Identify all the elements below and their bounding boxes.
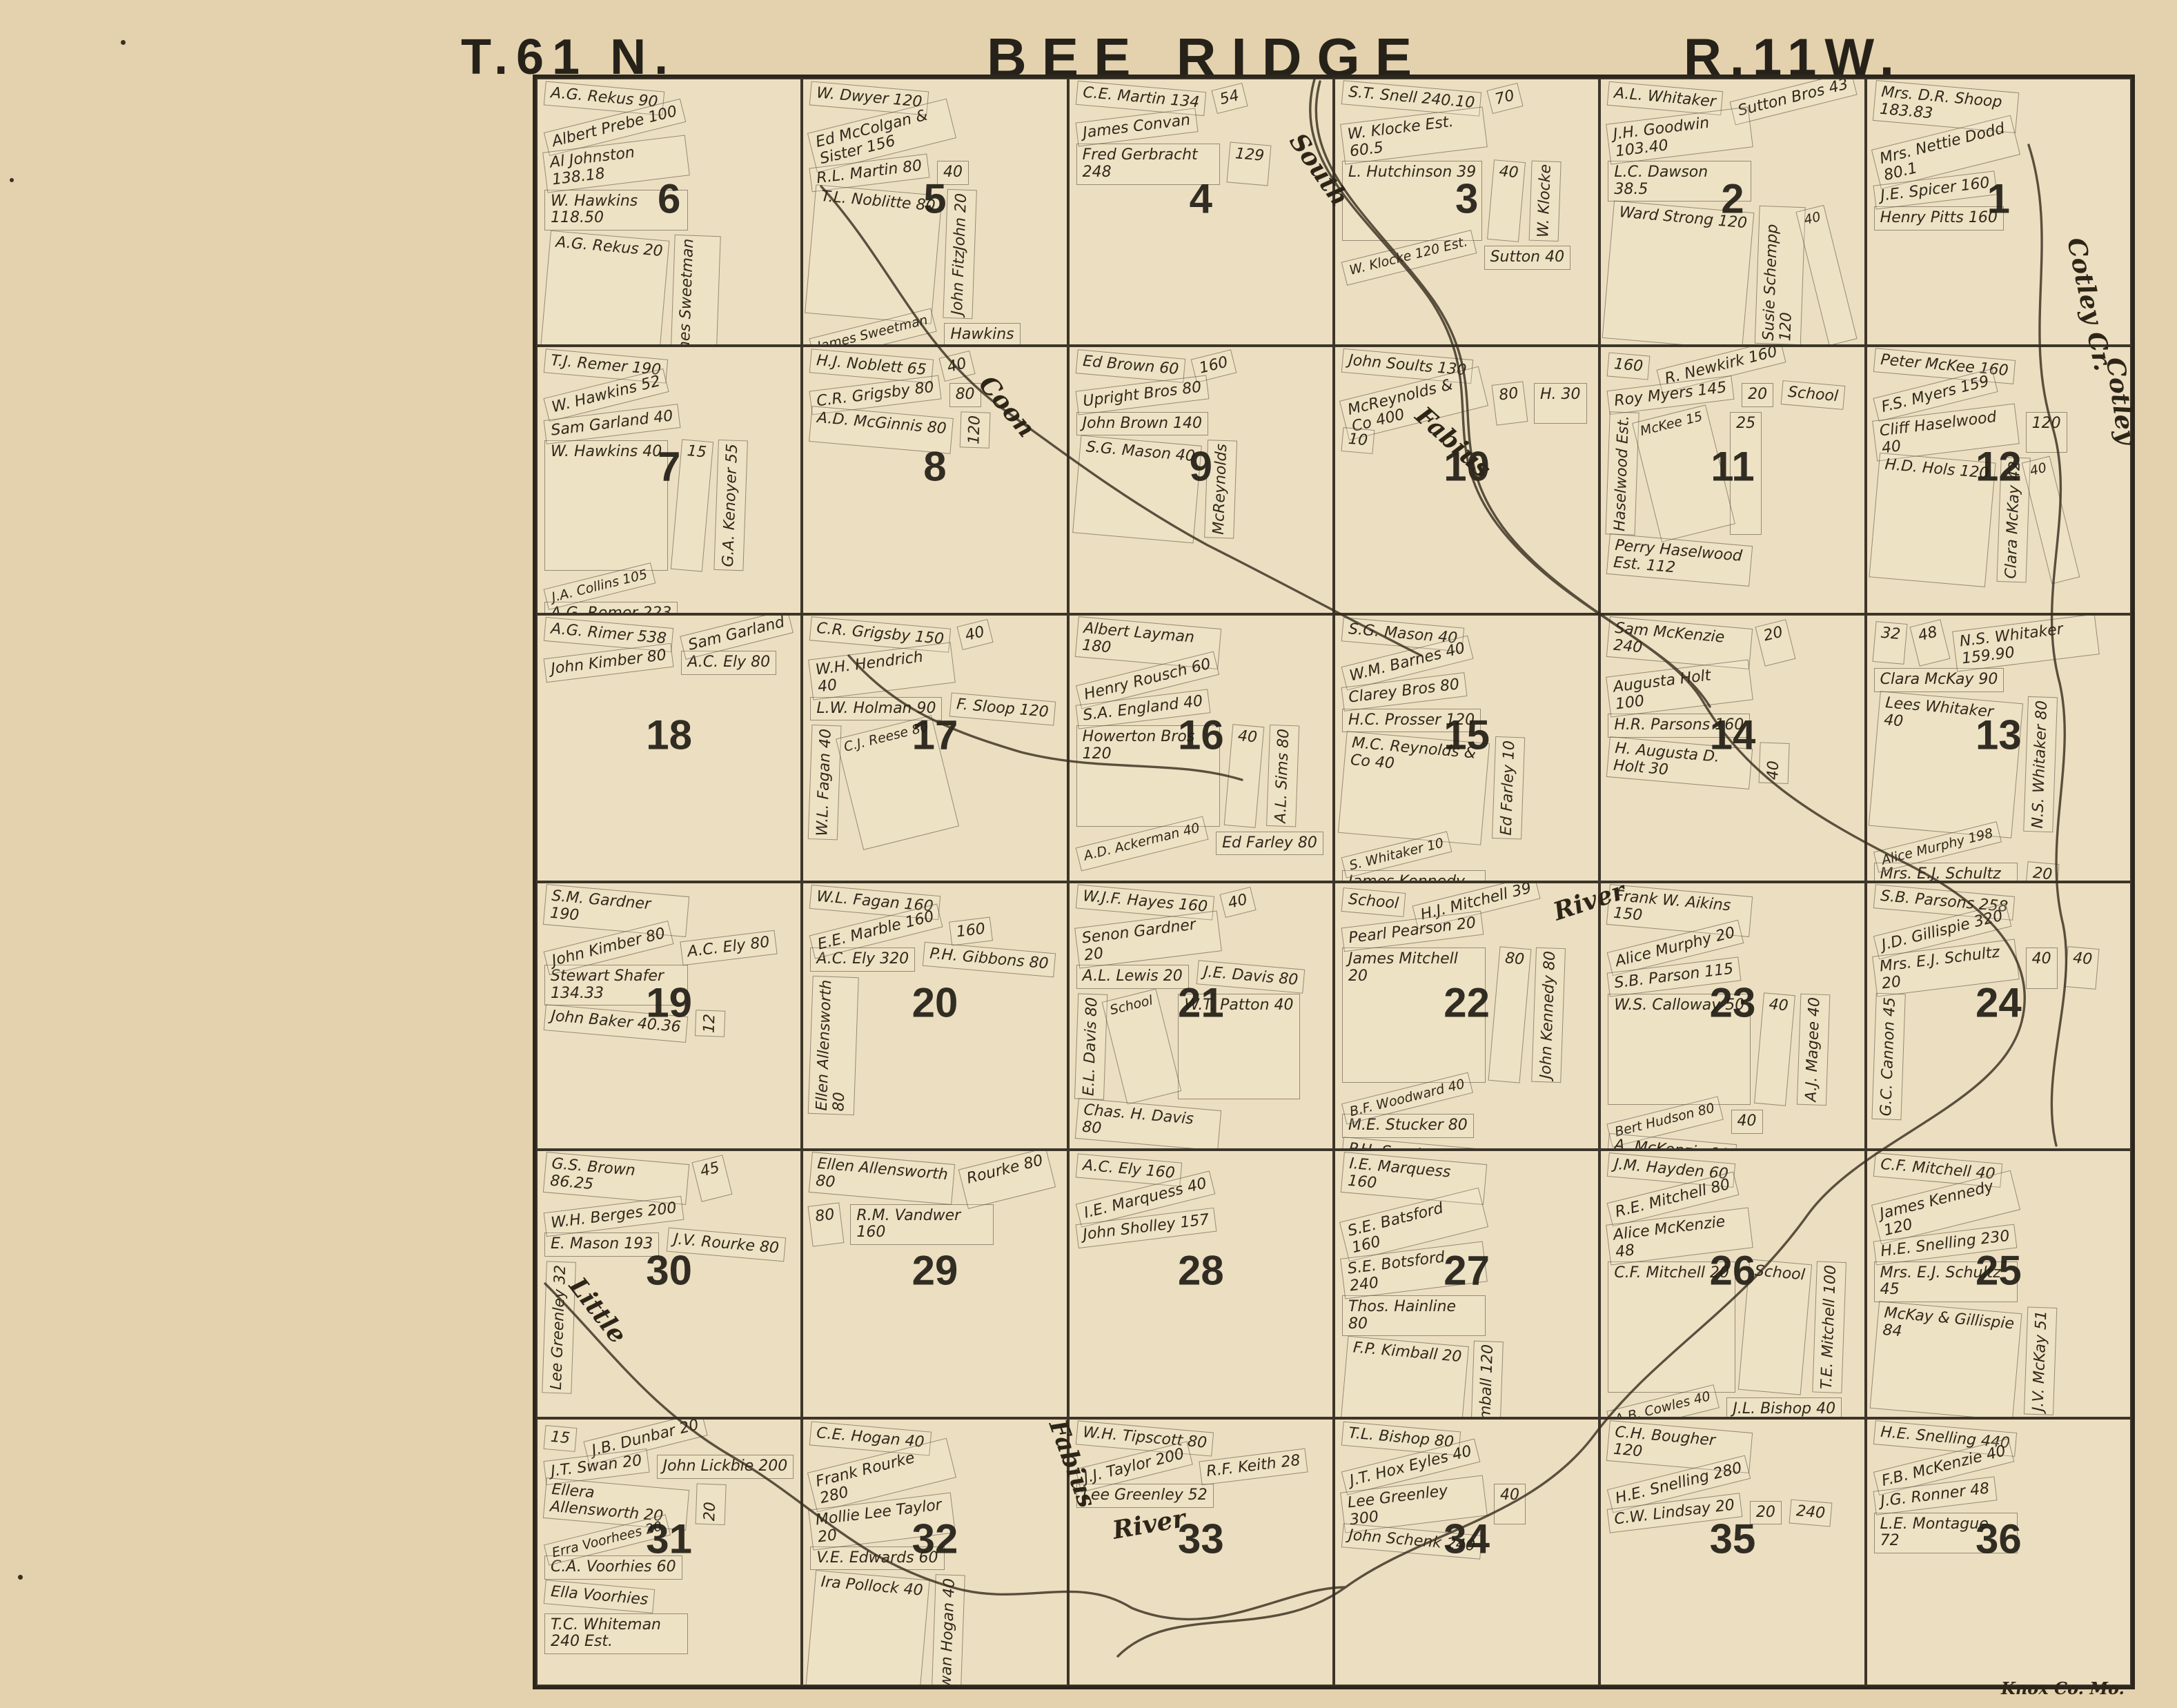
parcel-label: 40: [1487, 159, 1526, 242]
section-23: 23Frank W. Aikins 150Alice Murphy 20S.B.…: [1599, 882, 1865, 1150]
parcel-label: John Brown 140: [1076, 412, 1208, 436]
parcel-list: C.F. Mitchell 40James Kennedy 120H.E. Sn…: [1874, 1158, 2125, 1412]
parcel-label: 40: [1731, 1110, 1763, 1134]
parcel-label: H. 30: [1534, 383, 1587, 424]
parcel-label: 20: [1755, 619, 1796, 667]
parcel-label: 15: [544, 1425, 578, 1452]
section-14: 14Sam McKenzie 24020Augusta Holt 100H.R.…: [1599, 614, 1865, 882]
parcel-list: I.E. Marquess 160S.E. Batsford 160S.E. B…: [1342, 1158, 1593, 1412]
plat-map-page: T.61 N. BEE RIDGE R.11W. 6A.G. Rekus 90A…: [0, 0, 2177, 1708]
section-24: 24S.B. Parsons 258J.D. Gillispie 320Mrs.…: [1866, 882, 2131, 1150]
parcel-list: 15J.B. Dunbar 20J.T. Swan 20John Lickbie…: [544, 1426, 795, 1680]
parcel-label: 40: [1219, 887, 1256, 918]
township-section-grid: 6A.G. Rekus 90Albert Prebe 100Al Johnsto…: [533, 75, 2135, 1689]
parcel-list: 3248N.S. Whitaker 159.90Clara McKay 90Le…: [1874, 622, 2125, 876]
parcel-label: James Mitchell 20: [1342, 948, 1486, 1082]
parcel-label: 25: [1730, 412, 1762, 535]
parcel-label: R.M. Vandwer 160: [850, 1204, 994, 1245]
parcel-list: 160R. Newkirk 160Roy Myers 14520SchoolHa…: [1608, 354, 1858, 608]
parcel-list: A.L. WhitakerSutton Bros 43J.H. Goodwin …: [1608, 86, 1858, 340]
section-10: 10John Soults 130McReynolds & Co 40080H.…: [1334, 346, 1599, 613]
parcel-label: A.D. McGinnis 80: [809, 406, 954, 454]
parcel-label: Lee Greenley 32: [542, 1261, 576, 1393]
section-19: 19S.M. Gardner 190John Kimber 80A.C. Ely…: [536, 882, 802, 1150]
parcel-label: Henry Pitts 160: [1874, 206, 2004, 230]
parcel-list: C.R. Grigsby 15040W.H. Hendrich 40L.W. H…: [810, 622, 1061, 876]
section-27: 27I.E. Marquess 160S.E. Batsford 160S.E.…: [1334, 1150, 1599, 1417]
parcel-label: John Schenk 240: [1341, 1523, 1482, 1559]
parcel-label: M.C. Reynolds & Co 40: [1338, 731, 1490, 845]
parcel-list: Ed Brown 60160Upright Bros 80John Brown …: [1076, 354, 1327, 608]
parcel-label: 20: [2024, 862, 2059, 882]
section-17: 17C.R. Grigsby 15040W.H. Hendrich 40L.W.…: [802, 614, 1067, 882]
parcel-list: S.B. Parsons 258J.D. Gillispie 320Mrs. E…: [1874, 890, 2125, 1144]
section-36: 36H.E. Snelling 440F.B. McKenzie 40J.G. …: [1866, 1418, 2131, 1686]
parcel-list: H.E. Snelling 440F.B. McKenzie 40J.G. Ro…: [1874, 1426, 2125, 1680]
paper-speck: [10, 178, 14, 182]
parcel-label: 40: [2064, 946, 2099, 990]
parcel-label: Ira Pollock 40: [805, 1571, 931, 1686]
section-8: 8H.J. Noblett 6540C.R. Grigsby 8080A.D. …: [802, 346, 1067, 613]
parcel-label: G.A. Kenoyer 55: [714, 440, 748, 571]
parcel-label: H. Augusta D. Holt 30: [1606, 736, 1753, 789]
section-11: 11160R. Newkirk 160Roy Myers 14520School…: [1599, 346, 1865, 613]
parcel-list: A.G. Rekus 90Albert Prebe 100Al Johnston…: [544, 86, 795, 340]
parcel-label: 20: [1742, 383, 1773, 407]
parcel-list: C.E. Hogan 40Frank Rourke 280Mollie Lee …: [810, 1426, 1061, 1680]
parcel-label: Susie Schempp 120: [1755, 206, 1806, 345]
parcel-label: F.P. Kimball 20: [1337, 1336, 1468, 1418]
parcel-label: 40: [2022, 455, 2080, 584]
parcel-label: L. Hutchinson 39: [1342, 161, 1482, 241]
parcel-label: 15: [671, 440, 713, 572]
parcel-list: S.G. Mason 40W.M. Barnes 40Clarey Bros 8…: [1342, 622, 1593, 876]
section-2: 2A.L. WhitakerSutton Bros 43J.H. Goodwin…: [1599, 78, 1865, 346]
parcel-label: L.E. Montague 72: [1874, 1513, 2018, 1553]
parcel-label: Pearl Pearson 20: [1341, 910, 1484, 951]
parcel-label: P.H. Gibbons 80: [923, 942, 1056, 977]
parcel-label: G.C. Cannon 45: [1871, 993, 1905, 1120]
parcel-label: Ella Voorhies: [544, 1580, 656, 1613]
parcel-list: W.H. Tipscott 80J.J. Taylor 200R.F. Keit…: [1076, 1426, 1327, 1680]
parcel-label: 160: [949, 916, 993, 945]
parcel-label: W.S. Calloway 50: [1608, 994, 1751, 1105]
section-6: 6A.G. Rekus 90Albert Prebe 100Al Johnsto…: [536, 78, 802, 346]
section-9: 9Ed Brown 60160Upright Bros 80John Brown…: [1068, 346, 1334, 613]
parcel-label: W. Klocke: [1529, 160, 1562, 242]
parcel-label: 40: [2026, 948, 2058, 988]
parcel-label: T.E. Mitchell 100: [1813, 1261, 1846, 1393]
section-31: 3115J.B. Dunbar 20J.T. Swan 20John Lickb…: [536, 1418, 802, 1686]
parcel-label: 160: [1607, 353, 1651, 380]
parcel-label: McReynolds: [1205, 440, 1238, 539]
parcel-list: J.M. Hayden 60R.E. Mitchell 80Alice McKe…: [1608, 1158, 1858, 1412]
parcel-label: 40: [937, 161, 969, 185]
parcel-label: W. Hawkins 40: [544, 440, 668, 571]
parcel-list: Frank W. Aikins 150Alice Murphy 20S.B. P…: [1608, 890, 1858, 1144]
parcel-label: McKay & Gillispie 84: [1869, 1301, 2022, 1417]
parcel-label: 40: [939, 351, 976, 382]
parcel-label: W.H. Tipscott 80: [1076, 1420, 1214, 1456]
parcel-list: John Soults 130McReynolds & Co 40080H. 3…: [1342, 354, 1593, 608]
parcel-label: School: [1738, 1259, 1812, 1395]
parcel-label: C.F. Mitchell 20: [1608, 1262, 1735, 1393]
parcel-label: 120: [2026, 412, 2067, 453]
parcel-label: Thos. Hainline 80: [1342, 1295, 1486, 1336]
parcel-list: A.C. Ely 160I.E. Marquess 40John Sholley…: [1076, 1158, 1327, 1412]
parcel-label: School: [1781, 380, 1846, 409]
parcel-label: Mrs. E.J. Schultz 45: [1874, 1262, 2018, 1302]
parcel-label: 45: [692, 1155, 733, 1203]
parcel-list: Mrs. D.R. Shoop 183.83Mrs. Nettie Dodd 8…: [1874, 86, 2125, 340]
parcel-label: 40: [1795, 205, 1857, 346]
parcel-label: J.L. Bishop 40: [1726, 1397, 1842, 1418]
parcel-label: John FitzJohn 20: [943, 189, 977, 319]
parcel-list: T.J. Remer 190W. Hawkins 52Sam Garland 4…: [544, 354, 795, 608]
parcel-list: G.S. Brown 86.2545W.H. Berges 200E. Maso…: [544, 1158, 795, 1412]
parcel-label: W.H. Hendrich 40: [808, 642, 956, 700]
section-5: 5W. Dwyer 120Ed McColgan & Sister 156R.L…: [802, 78, 1067, 346]
parcel-label: Chas. H. Davis 80: [1074, 1098, 1221, 1150]
parcel-list: S.M. Gardner 190John Kimber 80A.C. Ely 8…: [544, 890, 795, 1144]
parcel-label: 48: [1909, 619, 1950, 667]
parcel-label: A.L. Lewis 20: [1076, 965, 1189, 989]
parcel-label: S.G. Mason 40: [1072, 435, 1202, 544]
parcel-label: W.T. Patton 40: [1178, 994, 1299, 1099]
paper-speck: [18, 1575, 23, 1580]
parcel-label: McKee 15: [1632, 404, 1735, 542]
parcel-label: H.D. Hols 120: [1869, 453, 1996, 587]
parcel-label: N.S. Whitaker 159.90: [1952, 614, 2100, 672]
parcel-label: Ellen Allensworth 80: [808, 976, 859, 1115]
parcel-label: Hawkins: [944, 323, 1020, 346]
parcel-label: John Kennedy 80: [1532, 948, 1566, 1083]
parcel-label: W.H. Berges 200: [544, 1195, 684, 1236]
parcel-label: James Convan: [1075, 108, 1198, 146]
parcel-label: 32: [1872, 621, 1907, 665]
parcel-label: A.L. Sims 80: [1266, 725, 1299, 827]
parcel-label: A.C. Ely 80: [680, 930, 778, 965]
parcel-label: Ed Farley 10: [1492, 736, 1525, 839]
parcel-label: A.J. Magee 40: [1797, 993, 1830, 1106]
parcel-label: 240: [1789, 1499, 1832, 1527]
section-7: 7T.J. Remer 190W. Hawkins 52Sam Garland …: [536, 346, 802, 613]
parcel-list: C.H. Bougher 120H.E. Snelling 280C.W. Li…: [1608, 1426, 1858, 1680]
parcel-label: Clara McKay 90: [1874, 668, 2004, 692]
parcel-label: 12: [695, 1010, 725, 1037]
parcel-list: SchoolH.J. Mitchell 39Pearl Pearson 20Ja…: [1342, 890, 1593, 1144]
parcel-label: 40: [1223, 724, 1264, 827]
section-18: 18A.G. Rimer 538Sam GarlandJohn Kimber 8…: [536, 614, 802, 882]
parcel-label: F. Sloop 120: [949, 692, 1056, 725]
parcel-label: J.E. Davis 80: [1196, 960, 1305, 993]
parcel-label: 80: [808, 1202, 845, 1246]
parcel-label: V.E. Edwards 60: [810, 1547, 944, 1571]
parcel-label: Howerton Bros 120: [1076, 725, 1220, 827]
parcel-list: T.L. Bishop 80J.T. Hox Eyles 40Lee Green…: [1342, 1426, 1593, 1680]
parcel-label: H.C. Prosser 120: [1342, 709, 1481, 733]
parcel-label: Ed Brown 60: [1075, 350, 1185, 383]
parcel-label: John Lickbie 200: [657, 1455, 794, 1479]
section-1: 1Mrs. D.R. Shoop 183.83Mrs. Nettie Dodd …: [1866, 78, 2131, 346]
parcel-label: Fred Gerbracht 248: [1076, 144, 1220, 184]
parcel-label: T.C. Whiteman 240 Est.: [544, 1613, 688, 1654]
parcel-list: W.L. Fagan 160E.E. Marble 160160A.C. Ely…: [810, 890, 1061, 1144]
parcel-label: School: [1102, 988, 1182, 1104]
parcel-label: L.C. Dawson 38.5: [1608, 161, 1751, 202]
parcel-label: J.V. Rourke 80: [667, 1228, 786, 1262]
parcel-label: H.R. Parsons 160: [1608, 714, 1750, 738]
parcel-label: Stewart Shafer 134.33: [544, 965, 688, 1005]
section-32: 32C.E. Hogan 40Frank Rourke 280Mollie Le…: [802, 1418, 1067, 1686]
parcel-list: Sam McKenzie 24020Augusta Holt 100H.R. P…: [1608, 622, 1858, 876]
parcel-label: F.D. Kimball 120: [1469, 1341, 1503, 1418]
parcel-label: 20: [696, 1483, 727, 1525]
parcel-label: Ed Farley 80: [1216, 832, 1323, 856]
parcel-list: H.J. Noblett 6540C.R. Grigsby 8080A.D. M…: [810, 354, 1061, 608]
section-21: 21W.J.F. Hayes 16040Senon Gardner 20A.L.…: [1068, 882, 1334, 1150]
section-35: 35C.H. Bougher 120H.E. Snelling 280C.W. …: [1599, 1418, 1865, 1686]
parcel-label: W. Hawkins 118.50: [544, 190, 688, 230]
parcel-label: P.H. Searbuck 40: [1341, 1137, 1484, 1150]
parcel-label: John Kimber 80: [544, 643, 674, 683]
parcel-list: Peter McKee 160F.S. Myers 159Cliff Hasel…: [1874, 354, 2125, 608]
parcel-label: Sutton 40: [1484, 246, 1571, 270]
parcel-label: 80: [949, 383, 981, 407]
parcel-label: John Baker 40.36: [544, 1004, 688, 1043]
parcel-label: 40: [1494, 1484, 1526, 1524]
corner-note: Knox Co. Mo.: [2001, 1678, 2125, 1698]
parcel-label: 120: [961, 411, 991, 448]
section-16: 16Albert Layman 180Henry Rousch 60S.A. E…: [1068, 614, 1334, 882]
parcel-list: A.G. Rimer 538Sam GarlandJohn Kimber 80A…: [544, 622, 795, 876]
section-30: 30G.S. Brown 86.2545W.H. Berges 200E. Ma…: [536, 1150, 802, 1417]
parcel-list: Ellen Allensworth 80Rourke 8080R.M. Vand…: [810, 1158, 1061, 1412]
parcel-label: 20: [1750, 1501, 1782, 1525]
section-4: 4C.E. Martin 13454James ConvanFred Gerbr…: [1068, 78, 1334, 346]
parcel-label: 80: [1492, 381, 1528, 425]
parcel-label: T.L. Noblitte 80: [805, 184, 943, 324]
parcel-label: 40: [1754, 992, 1795, 1106]
parcel-label: 129: [1226, 142, 1271, 186]
section-22: 22SchoolH.J. Mitchell 39Pearl Pearson 20…: [1334, 882, 1599, 1150]
parcel-label: Augusta Holt 100: [1606, 659, 1753, 717]
parcel-label: Swan Hogan 40: [931, 1575, 965, 1686]
parcel-label: W. Klocke Est. 60.5: [1340, 106, 1488, 164]
parcel-list: S.T. Snell 240.1070W. Klocke Est. 60.5L.…: [1342, 86, 1593, 340]
paper-speck: [121, 40, 126, 45]
parcel-label: Perry Haselwood Est. 112: [1606, 533, 1753, 587]
section-29: 29Ellen Allensworth 80Rourke 8080R.M. Va…: [802, 1150, 1067, 1417]
parcel-label: James Sweetman 60: [670, 235, 721, 346]
parcel-label: Upright Bros 80: [1075, 375, 1209, 415]
parcel-label: J.V. McKay 51: [2024, 1306, 2057, 1415]
parcel-label: E. Mason 193: [544, 1233, 659, 1257]
parcel-label: N.S. Whitaker 80: [2023, 696, 2057, 832]
section-12: 12Peter McKee 160F.S. Myers 159Cliff Has…: [1866, 346, 2131, 613]
parcel-label: J.H. Goodwin 103.40: [1606, 106, 1753, 164]
parcel-label: 10: [1341, 427, 1375, 454]
parcel-label: A.G. Rekus 20: [539, 230, 670, 346]
parcel-list: Albert Layman 180Henry Rousch 60S.A. Eng…: [1076, 622, 1327, 876]
section-25: 25C.F. Mitchell 40James Kennedy 120H.E. …: [1866, 1150, 2131, 1417]
section-33: 33W.H. Tipscott 80J.J. Taylor 200R.F. Ke…: [1068, 1418, 1334, 1686]
parcel-label: R.F. Keith 28: [1199, 1449, 1308, 1485]
parcel-label: 80: [1488, 947, 1532, 1084]
section-15: 15S.G. Mason 40W.M. Barnes 40Clarey Bros…: [1334, 614, 1599, 882]
parcel-list: W.J.F. Hayes 16040Senon Gardner 20A.L. L…: [1076, 890, 1327, 1144]
parcel-label: 40: [956, 619, 993, 650]
parcel-label: 54: [1212, 83, 1248, 114]
parcel-label: E.L. Davis 80: [1074, 993, 1107, 1100]
parcel-list: C.E. Martin 13454James ConvanFred Gerbra…: [1076, 86, 1327, 340]
section-20: 20W.L. Fagan 160E.E. Marble 160160A.C. E…: [802, 882, 1067, 1150]
parcel-label: A. McKenzie 18: [1607, 1133, 1737, 1150]
parcel-label: Rourke 80: [958, 1150, 1056, 1209]
section-13: 133248N.S. Whitaker 159.90Clara McKay 90…: [1866, 614, 2131, 882]
section-34: 34T.L. Bishop 80J.T. Hox Eyles 40Lee Gre…: [1334, 1418, 1599, 1686]
parcel-list: W. Dwyer 120Ed McColgan & Sister 156R.L.…: [810, 86, 1061, 340]
parcel-label: Ellen Allensworth 80: [809, 1152, 955, 1205]
section-28: 28A.C. Ely 160I.E. Marquess 40John Sholl…: [1068, 1150, 1334, 1417]
parcel-label: Ward Strong 120: [1602, 201, 1755, 346]
section-3: 3S.T. Snell 240.1070W. Klocke Est. 60.5L…: [1334, 78, 1599, 346]
section-26: 26J.M. Hayden 60R.E. Mitchell 80Alice Mc…: [1599, 1150, 1865, 1417]
parcel-label: School: [1341, 887, 1406, 916]
parcel-label: Lees Whitaker 40: [1869, 691, 2023, 838]
parcel-label: 40: [1759, 742, 1790, 784]
parcel-label: C.J. Reese 80: [836, 715, 959, 850]
parcel-label: 70: [1487, 83, 1524, 114]
parcel-label: A.L. Whitaker: [1607, 81, 1723, 115]
